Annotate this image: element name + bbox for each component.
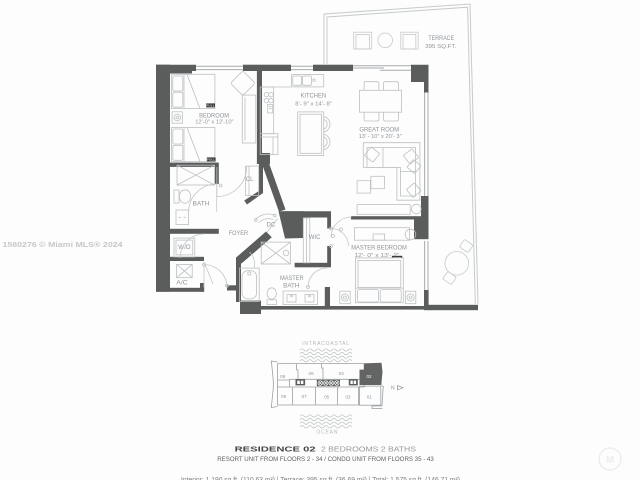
svg-text:09: 09 (281, 394, 287, 399)
svg-text:395 SQ.FT.: 395 SQ.FT. (425, 44, 456, 50)
svg-text:WIC: WIC (309, 234, 321, 241)
svg-text:MASTER: MASTER (280, 275, 304, 282)
svg-text:OCEAN: OCEAN (316, 430, 338, 436)
svg-text:KITCHEN: KITCHEN (300, 93, 326, 100)
svg-text:02: 02 (366, 374, 372, 379)
svg-text:13′ - 10″ x 20′- 3″: 13′ - 10″ x 20′- 3″ (359, 134, 402, 140)
svg-text:1580276 © Miami MLS® 2024: 1580276 © Miami MLS® 2024 (3, 240, 124, 249)
svg-text:05: 05 (324, 394, 330, 399)
svg-text:03: 03 (345, 394, 351, 399)
svg-text:KING: KING (393, 256, 402, 260)
svg-text:GREAT ROOM: GREAT ROOM (359, 127, 399, 134)
svg-text:FOYER: FOYER (229, 230, 249, 237)
svg-text:FULL: FULL (207, 158, 215, 162)
svg-text:BATH: BATH (283, 282, 299, 289)
svg-text:W/D: W/D (178, 245, 191, 251)
svg-text:8′- 9″ x 14′- 8″: 8′- 9″ x 14′- 8″ (295, 101, 332, 107)
svg-text:BATH: BATH (193, 201, 210, 208)
svg-text:06: 06 (309, 371, 315, 376)
svg-text:FULL: FULL (207, 104, 215, 108)
svg-text:M: M (606, 455, 614, 466)
svg-text:N: N (391, 386, 395, 392)
svg-text:RESIDENCE 02: RESIDENCE 02 (235, 445, 316, 454)
svg-text:CL: CL (246, 177, 254, 183)
svg-text:INTRACOASTAL: INTRACOASTAL (302, 341, 350, 347)
svg-text:01: 01 (367, 394, 373, 399)
svg-text:MASTER BEDROOM: MASTER BEDROOM (351, 245, 407, 252)
svg-text:DC: DC (267, 223, 276, 229)
svg-text:2 BEDROOMS 2 BATHS: 2 BEDROOMS 2 BATHS (321, 445, 416, 454)
svg-text:TERRACE: TERRACE (428, 35, 454, 42)
svg-text:RESORT UNIT FROM FLOORS 2 - 34: RESORT UNIT FROM FLOORS 2 - 34 / CONDO U… (217, 456, 434, 463)
svg-text:A/C: A/C (176, 280, 188, 286)
svg-text:08: 08 (280, 374, 286, 379)
svg-text:04: 04 (339, 371, 345, 376)
svg-text:12′-0″ x 12′-10″: 12′-0″ x 12′-10″ (195, 120, 233, 126)
svg-text:07: 07 (302, 394, 308, 399)
